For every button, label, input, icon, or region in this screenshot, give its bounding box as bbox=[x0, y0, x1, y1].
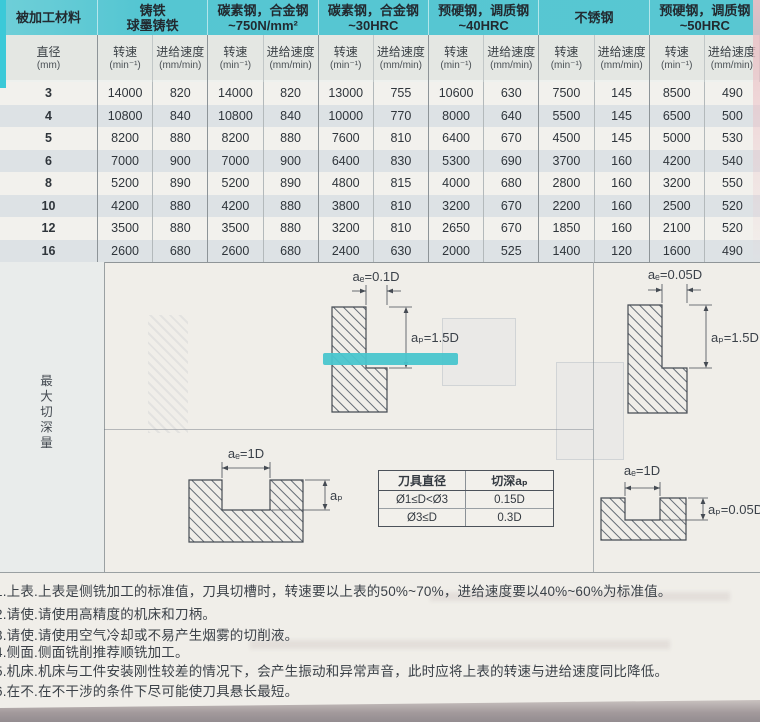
subheader-unit: (mm/min) bbox=[380, 60, 422, 72]
speed-subheader: 转速(min⁻¹) bbox=[98, 35, 153, 82]
speed-cell: 2400 bbox=[319, 240, 374, 263]
feed-cell: 145 bbox=[595, 105, 650, 128]
corner-header-label: 被加工材料 bbox=[16, 10, 81, 25]
speed-cell: 2200 bbox=[539, 195, 594, 218]
feed-cell: 690 bbox=[484, 150, 539, 173]
speed-cell: 5000 bbox=[650, 127, 705, 150]
feed-cell: 880 bbox=[264, 127, 319, 150]
feed-cell: 160 bbox=[595, 172, 650, 195]
feed-cell: 630 bbox=[484, 82, 539, 105]
feed-cell: 840 bbox=[153, 105, 208, 128]
material-header-cast-iron: 铸铁 球墨铸铁 bbox=[98, 0, 208, 35]
feed-cell: 900 bbox=[153, 150, 208, 173]
subheader-label: 进给速度 bbox=[267, 45, 315, 59]
feed-cell: 520 bbox=[705, 217, 760, 240]
cut-depth-row: Ø3≤D 0.3D bbox=[379, 509, 553, 526]
subheader-row: 直径 (mm) 转速(min⁻¹)进给速度(mm/min)转速(min⁻¹)进给… bbox=[0, 35, 760, 83]
feed-cell: 810 bbox=[374, 195, 429, 218]
diameter-cell: 4 bbox=[0, 105, 98, 128]
diameter-header-cell: 直径 (mm) bbox=[0, 35, 98, 82]
table-row: 4108008401080084010000770800064055001456… bbox=[0, 105, 760, 128]
feed-cell: 810 bbox=[374, 127, 429, 150]
diameter-cell: 6 bbox=[0, 150, 98, 173]
feed-cell: 540 bbox=[705, 150, 760, 173]
bleedthrough-hatch bbox=[148, 315, 188, 433]
feed-cell: 640 bbox=[484, 105, 539, 128]
ap-dim-label: aₚ=1.5D bbox=[411, 330, 459, 345]
speed-subheader: 转速(min⁻¹) bbox=[650, 35, 705, 82]
material-header-carbon-30hrc: 碳素钢，合金钢 ~30HRC bbox=[319, 0, 429, 35]
speed-cell: 8200 bbox=[208, 127, 263, 150]
speed-cell: 4200 bbox=[98, 195, 153, 218]
ae-dim-label: aₑ=0.1D bbox=[352, 269, 399, 284]
material-line2: ~30HRC bbox=[348, 18, 398, 33]
material-line1: 预硬钢，调质钢 bbox=[438, 3, 529, 18]
speed-cell: 10800 bbox=[208, 105, 263, 128]
feed-cell: 670 bbox=[484, 195, 539, 218]
speed-cell: 5200 bbox=[98, 172, 153, 195]
section-divider-horizontal bbox=[0, 572, 760, 573]
speed-cell: 2600 bbox=[208, 240, 263, 263]
diameter-range: Ø1≤D<Ø3 bbox=[379, 491, 466, 508]
feed-cell: 900 bbox=[264, 150, 319, 173]
diameter-cell: 5 bbox=[0, 127, 98, 150]
speed-cell: 6500 bbox=[650, 105, 705, 128]
feed-cell: 815 bbox=[374, 172, 429, 195]
speed-cell: 1600 bbox=[650, 240, 705, 263]
subheader-unit: (min⁻¹) bbox=[551, 60, 582, 72]
diagram-shallow-slot: aₑ=1D aₚ=0.05D bbox=[592, 462, 760, 557]
cut-depth-header-row: 刀具直径 切深aₚ bbox=[379, 471, 553, 491]
diagram-side-milling-01d: aₑ=0.1D aₚ=1.5D bbox=[280, 265, 480, 425]
subheader-label: 进给速度 bbox=[156, 45, 204, 59]
depth-value: 0.15D bbox=[466, 491, 553, 508]
speed-cell: 2000 bbox=[429, 240, 484, 263]
diameter-range: Ø3≤D bbox=[379, 509, 466, 526]
speed-cell: 1400 bbox=[539, 240, 594, 263]
footnote-5: 5.机床.机床与工件安装刚性较差的情况下，会产生振动和异常声音，此时应将上表的转… bbox=[0, 660, 760, 680]
feed-cell: 755 bbox=[374, 82, 429, 105]
cut-depth-table: 刀具直径 切深aₚ Ø1≤D<Ø3 0.15D Ø3≤D 0.3D bbox=[378, 470, 554, 527]
footnote-2: 2.请使.请使用高精度的机床和刀柄。 bbox=[0, 603, 760, 623]
material-header-stainless: 不锈钢 bbox=[539, 0, 649, 35]
subheader-unit: (mm/min) bbox=[490, 60, 532, 72]
speed-cell: 14000 bbox=[208, 82, 263, 105]
speed-cell: 2800 bbox=[539, 172, 594, 195]
feed-cell: 880 bbox=[153, 217, 208, 240]
feed-cell: 680 bbox=[264, 240, 319, 263]
speed-cell: 3500 bbox=[98, 217, 153, 240]
table-row: 1235008803500880320081026506701850160210… bbox=[0, 217, 760, 240]
speed-cell: 3200 bbox=[429, 195, 484, 218]
speed-cell: 3200 bbox=[650, 172, 705, 195]
subheader-label: 转速 bbox=[334, 45, 358, 59]
speed-cell: 4800 bbox=[319, 172, 374, 195]
photo-edge-pink bbox=[753, 0, 760, 268]
feed-cell: 160 bbox=[595, 217, 650, 240]
cut-depth-header: 切深aₚ bbox=[466, 471, 553, 490]
speed-cell: 2600 bbox=[98, 240, 153, 263]
material-header-prehardened-40hrc: 预硬钢，调质钢 ~40HRC bbox=[429, 0, 539, 35]
table-row: 5820088082008807600810640067045001455000… bbox=[0, 127, 760, 150]
speed-cell: 7000 bbox=[98, 150, 153, 173]
section-divider-vertical-1 bbox=[104, 262, 105, 572]
diameter-cell: 8 bbox=[0, 172, 98, 195]
material-line1: 不锈钢 bbox=[574, 10, 613, 25]
table-row: 8520089052008904800815400068028001603200… bbox=[0, 172, 760, 195]
speed-subheader: 转速(min⁻¹) bbox=[208, 35, 263, 82]
speed-cell: 8500 bbox=[650, 82, 705, 105]
table-row: 3140008201400082013000755106006307500145… bbox=[0, 82, 760, 105]
speed-cell: 7500 bbox=[539, 82, 594, 105]
max-cut-depth-label: 最大切深量 bbox=[36, 374, 55, 452]
feed-cell: 550 bbox=[705, 172, 760, 195]
subheader-unit: (min⁻¹) bbox=[220, 60, 251, 72]
feed-subheader: 进给速度(mm/min) bbox=[374, 35, 429, 82]
subheader-label: 转速 bbox=[223, 45, 247, 59]
material-line2: ~750N/mm² bbox=[228, 18, 298, 33]
speed-cell: 14000 bbox=[98, 82, 153, 105]
subheader-unit: (mm/min) bbox=[159, 60, 201, 72]
speed-cell: 3800 bbox=[319, 195, 374, 218]
feed-cell: 490 bbox=[705, 240, 760, 263]
diameter-cell: 10 bbox=[0, 195, 98, 218]
feed-cell: 680 bbox=[153, 240, 208, 263]
material-header-carbon-750: 碳素钢，合金钢 ~750N/mm² bbox=[208, 0, 318, 35]
corner-header-cell: 被加工材料 bbox=[0, 0, 98, 35]
feed-cell: 880 bbox=[264, 195, 319, 218]
ae-dim-label: aₑ=1D bbox=[228, 446, 264, 461]
speed-cell: 5200 bbox=[208, 172, 263, 195]
subheader-unit: (min⁻¹) bbox=[109, 60, 140, 72]
feed-cell: 500 bbox=[705, 105, 760, 128]
diagram-slot-milling: aₑ=1D aₚ bbox=[178, 448, 353, 556]
ae-dim-label: aₑ=0.05D bbox=[648, 267, 702, 282]
speed-cell: 4500 bbox=[539, 127, 594, 150]
scanned-cutting-parameters-page: 被加工材料 铸铁 球墨铸铁 碳素钢，合金钢 ~750N/mm² 碳素钢，合金钢 … bbox=[0, 0, 760, 722]
speed-subheader: 转速(min⁻¹) bbox=[539, 35, 594, 82]
speed-cell: 4200 bbox=[208, 195, 263, 218]
material-line2: ~40HRC bbox=[459, 18, 509, 33]
speed-cell: 10600 bbox=[429, 82, 484, 105]
speed-cell: 5500 bbox=[539, 105, 594, 128]
feed-cell: 880 bbox=[153, 127, 208, 150]
feed-subheader: 进给速度(mm/min) bbox=[264, 35, 319, 82]
speed-cell: 3500 bbox=[208, 217, 263, 240]
ap-dim-label: aₚ=1.5D bbox=[711, 330, 759, 345]
feed-cell: 890 bbox=[153, 172, 208, 195]
feed-subheader: 进给速度(mm/min) bbox=[595, 35, 650, 82]
ap-dim-label: aₚ bbox=[330, 488, 343, 503]
footnote-1: 1.上表.上表是侧铣加工的标准值，刀具切槽时，转速要以上表的50%~70%，进给… bbox=[0, 580, 760, 600]
feed-cell: 670 bbox=[484, 127, 539, 150]
feed-subheader: 进给速度(mm/min) bbox=[153, 35, 208, 82]
tool-diameter-header: 刀具直径 bbox=[379, 471, 466, 490]
table-row: 6700090070009006400830530069037001604200… bbox=[0, 150, 760, 173]
material-line1: 碳素钢，合金钢 bbox=[328, 3, 419, 18]
footnote-6: 6.在不.在不干涉的条件下尽可能使刀具悬长最短。 bbox=[0, 680, 760, 700]
feed-cell: 530 bbox=[705, 127, 760, 150]
cutting-data-rows: 3140008201400082013000755106006307500145… bbox=[0, 82, 760, 263]
speed-cell: 4200 bbox=[650, 150, 705, 173]
depth-value: 0.3D bbox=[466, 509, 553, 526]
speed-cell: 2100 bbox=[650, 217, 705, 240]
material-line1: 碳素钢，合金钢 bbox=[217, 3, 308, 18]
diameter-cell: 12 bbox=[0, 217, 98, 240]
speed-cell: 10000 bbox=[319, 105, 374, 128]
feed-cell: 830 bbox=[374, 150, 429, 173]
speed-cell: 2650 bbox=[429, 217, 484, 240]
feed-cell: 810 bbox=[374, 217, 429, 240]
subheader-unit: (mm/min) bbox=[600, 60, 642, 72]
feed-cell: 630 bbox=[374, 240, 429, 263]
speed-cell: 5300 bbox=[429, 150, 484, 173]
subheader-unit: (min⁻¹) bbox=[661, 60, 692, 72]
diameter-label: 直径 bbox=[36, 45, 60, 59]
feed-cell: 525 bbox=[484, 240, 539, 263]
cut-depth-row: Ø1≤D<Ø3 0.15D bbox=[379, 491, 553, 509]
subheader-unit: (mm/min) bbox=[711, 60, 753, 72]
feed-cell: 145 bbox=[595, 127, 650, 150]
teal-highlight-band bbox=[323, 353, 458, 365]
material-line1: 铸铁 bbox=[140, 3, 166, 18]
speed-subheader: 转速(min⁻¹) bbox=[319, 35, 374, 82]
material-line1: 预硬钢，调质钢 bbox=[659, 3, 750, 18]
subheader-unit: (min⁻¹) bbox=[330, 60, 361, 72]
speed-cell: 3200 bbox=[319, 217, 374, 240]
subheader-label: 进给速度 bbox=[377, 45, 425, 59]
diameter-unit: (mm) bbox=[37, 60, 60, 72]
feed-cell: 890 bbox=[264, 172, 319, 195]
photo-edge-cyan bbox=[0, 0, 6, 88]
feed-cell: 880 bbox=[153, 195, 208, 218]
feed-subheader: 进给速度(mm/min) bbox=[484, 35, 539, 82]
subheader-label: 转速 bbox=[113, 45, 137, 59]
feed-cell: 145 bbox=[595, 82, 650, 105]
diagram-side-milling-005d: aₑ=0.05D aₚ=1.5D bbox=[595, 262, 760, 422]
footnote-4: 4.侧面.侧面铣削推荐顺铣加工。 bbox=[0, 641, 760, 661]
diameter-cell: 16 bbox=[0, 240, 98, 263]
feed-cell: 820 bbox=[264, 82, 319, 105]
subheader-unit: (mm/min) bbox=[269, 60, 311, 72]
material-header-prehardened-50hrc: 预硬钢，调质钢 ~50HRC bbox=[650, 0, 760, 35]
ae-dim-label: aₑ=1D bbox=[624, 463, 660, 478]
speed-cell: 6400 bbox=[429, 127, 484, 150]
speed-cell: 8200 bbox=[98, 127, 153, 150]
feed-cell: 820 bbox=[153, 82, 208, 105]
speed-cell: 3700 bbox=[539, 150, 594, 173]
feed-cell: 670 bbox=[484, 217, 539, 240]
feed-cell: 120 bbox=[595, 240, 650, 263]
feed-cell: 160 bbox=[595, 150, 650, 173]
feed-cell: 490 bbox=[705, 82, 760, 105]
material-header-row: 被加工材料 铸铁 球墨铸铁 碳素钢，合金钢 ~750N/mm² 碳素钢，合金钢 … bbox=[0, 0, 760, 35]
feed-subheader: 进给速度(mm/min) bbox=[705, 35, 760, 82]
speed-cell: 10800 bbox=[98, 105, 153, 128]
table-row: 1042008804200880380081032006702200160250… bbox=[0, 195, 760, 218]
speed-subheader: 转速(min⁻¹) bbox=[429, 35, 484, 82]
feed-cell: 840 bbox=[264, 105, 319, 128]
subheader-label: 转速 bbox=[665, 45, 689, 59]
photo-edge-bottom bbox=[0, 698, 760, 722]
ap-dim-label: aₚ=0.05D bbox=[708, 502, 760, 517]
subheader-label: 转速 bbox=[444, 45, 468, 59]
subheader-label: 进给速度 bbox=[598, 45, 646, 59]
material-line2: 球墨铸铁 bbox=[127, 18, 179, 33]
feed-cell: 680 bbox=[484, 172, 539, 195]
subheader-unit: (min⁻¹) bbox=[440, 60, 471, 72]
speed-cell: 1850 bbox=[539, 217, 594, 240]
table-row: 1626006802600680240063020005251400120160… bbox=[0, 240, 760, 263]
subheader-label: 进给速度 bbox=[708, 45, 756, 59]
subheader-label: 转速 bbox=[554, 45, 578, 59]
speed-cell: 8000 bbox=[429, 105, 484, 128]
speed-cell: 13000 bbox=[319, 82, 374, 105]
feed-cell: 880 bbox=[264, 217, 319, 240]
speed-cell: 7000 bbox=[208, 150, 263, 173]
subheader-label: 进给速度 bbox=[487, 45, 535, 59]
feed-cell: 770 bbox=[374, 105, 429, 128]
feed-cell: 520 bbox=[705, 195, 760, 218]
speed-cell: 2500 bbox=[650, 195, 705, 218]
speed-cell: 6400 bbox=[319, 150, 374, 173]
speed-cell: 7600 bbox=[319, 127, 374, 150]
material-line2: ~50HRC bbox=[680, 18, 730, 33]
speed-cell: 4000 bbox=[429, 172, 484, 195]
feed-cell: 160 bbox=[595, 195, 650, 218]
diameter-cell: 3 bbox=[0, 82, 98, 105]
